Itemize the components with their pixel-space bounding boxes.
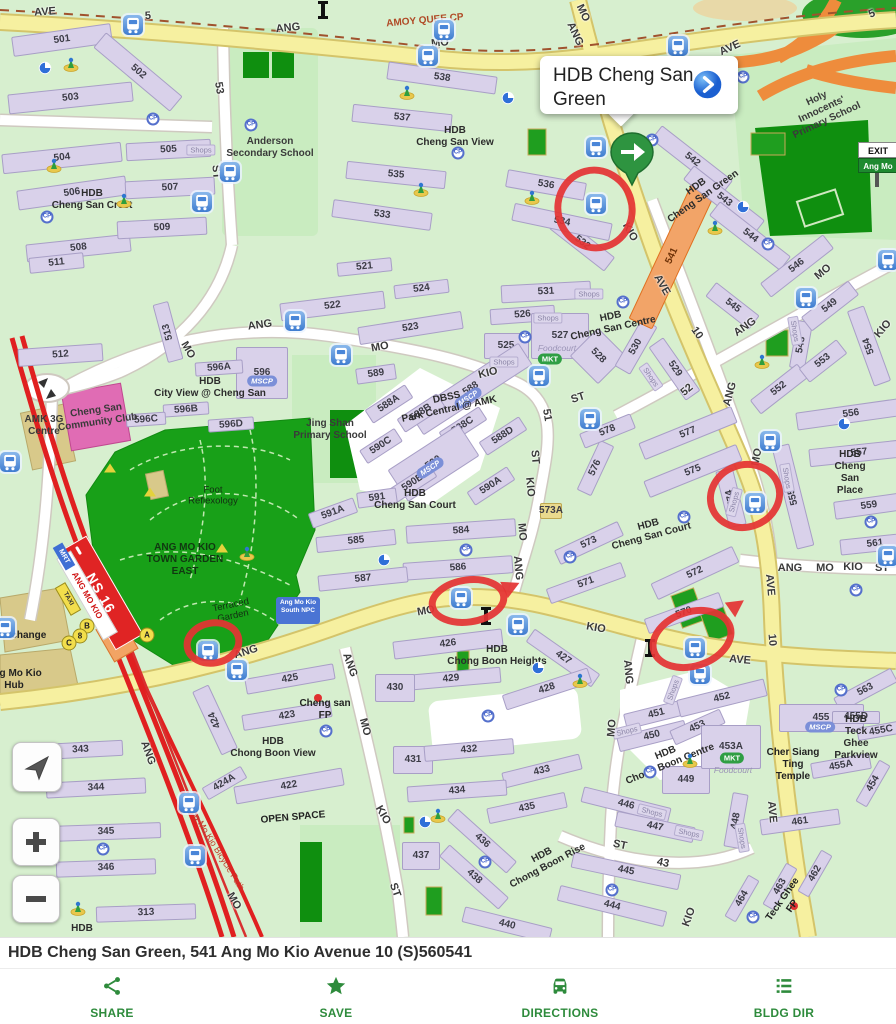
- bus-stop-icon[interactable]: [220, 162, 240, 182]
- station-exit-C: C: [62, 636, 77, 651]
- bus-stop-icon[interactable]: [198, 641, 218, 661]
- compass-arrow-icon: [22, 752, 52, 782]
- building-437[interactable]: 437: [402, 842, 440, 870]
- bldgdir-button[interactable]: BLDG DIR: [672, 969, 896, 1024]
- bus-stop-icon[interactable]: [331, 345, 351, 365]
- building-455D[interactable]: 455D: [832, 711, 880, 724]
- exit-sign-pole: [875, 173, 879, 187]
- directions-icon: [549, 975, 571, 1002]
- compass-button[interactable]: [12, 742, 62, 792]
- bus-stop-icon[interactable]: [123, 15, 143, 35]
- bus-stop-icon[interactable]: [586, 194, 606, 214]
- bus-stop-icon[interactable]: [508, 615, 528, 635]
- bus-stop-icon[interactable]: [878, 546, 896, 566]
- share-button[interactable]: SHARE: [0, 969, 224, 1024]
- bus-stop-icon[interactable]: [690, 664, 710, 684]
- bus-stop-icon[interactable]: [227, 660, 247, 680]
- building-596D[interactable]: 596D: [208, 416, 255, 432]
- directions-label: DIRECTIONS: [521, 1006, 598, 1020]
- bus-stop-icon[interactable]: [192, 192, 212, 212]
- exit-sign-bottom: Ang Mo: [858, 158, 896, 173]
- bus-stop-icon[interactable]: [179, 793, 199, 813]
- address-bar: HDB Cheng San Green, 541 Ang Mo Kio Aven…: [0, 937, 896, 968]
- bus-stop-icon[interactable]: [451, 588, 471, 608]
- building-453A[interactable]: 453A: [701, 725, 761, 769]
- bus-stop-icon[interactable]: [0, 618, 15, 638]
- map-canvas[interactable]: 5015025035045055065075085095115125135215…: [0, 0, 896, 937]
- destination-marker[interactable]: [609, 131, 655, 187]
- map-app-window: 5015025035045055065075085095115125135215…: [0, 0, 896, 1024]
- building-596B[interactable]: 596B: [163, 401, 210, 417]
- bldgdir-icon: [773, 975, 795, 1002]
- minus-icon: [23, 886, 49, 912]
- popup-detail-button[interactable]: [692, 69, 723, 100]
- bus-stop-icon[interactable]: [285, 311, 305, 331]
- plus-icon: [23, 829, 49, 855]
- bus-stop-icon[interactable]: [685, 638, 705, 658]
- bus-stop-icon[interactable]: [0, 452, 20, 472]
- bus-stop-icon[interactable]: [668, 36, 688, 56]
- station-exit-A: A: [140, 628, 155, 643]
- save-label: SAVE: [320, 1006, 353, 1020]
- building-573A[interactable]: 573A: [540, 503, 562, 519]
- popup-title: HDB Cheng San Green: [553, 64, 698, 112]
- bus-stop-icon[interactable]: [586, 137, 606, 157]
- exit-sign-top: EXIT: [858, 142, 896, 158]
- building-449[interactable]: 449: [662, 766, 710, 794]
- action-toolbar: SHARESAVEDIRECTIONSBLDG DIR: [0, 968, 896, 1024]
- bldgdir-label: BLDG DIR: [754, 1006, 814, 1020]
- directions-button[interactable]: DIRECTIONS: [448, 969, 672, 1024]
- bus-stop-icon[interactable]: [580, 409, 600, 429]
- bus-stop-icon[interactable]: [529, 366, 549, 386]
- npc-box: Ang Mo Kio South NPC: [276, 597, 320, 624]
- share-icon: [101, 975, 123, 1002]
- building-596[interactable]: 596: [236, 347, 288, 399]
- zoom-in-button[interactable]: [12, 818, 60, 866]
- save-button[interactable]: SAVE: [224, 969, 448, 1024]
- bus-stop-icon[interactable]: [185, 846, 205, 866]
- bus-stop-icon[interactable]: [796, 288, 816, 308]
- bus-stop-icon[interactable]: [878, 250, 896, 270]
- bus-stop-icon[interactable]: [760, 431, 780, 451]
- bus-stop-icon[interactable]: [745, 493, 765, 513]
- bus-stop-icon[interactable]: [434, 20, 454, 40]
- zoom-out-button[interactable]: [12, 875, 60, 923]
- expressway-exit-sign: EXIT Ang Mo: [858, 142, 896, 187]
- bus-stop-icon[interactable]: [418, 46, 438, 66]
- building-430[interactable]: 430: [375, 674, 415, 702]
- save-icon: [325, 975, 347, 1002]
- share-label: SHARE: [90, 1006, 134, 1020]
- building-596C[interactable]: 596C: [126, 411, 167, 427]
